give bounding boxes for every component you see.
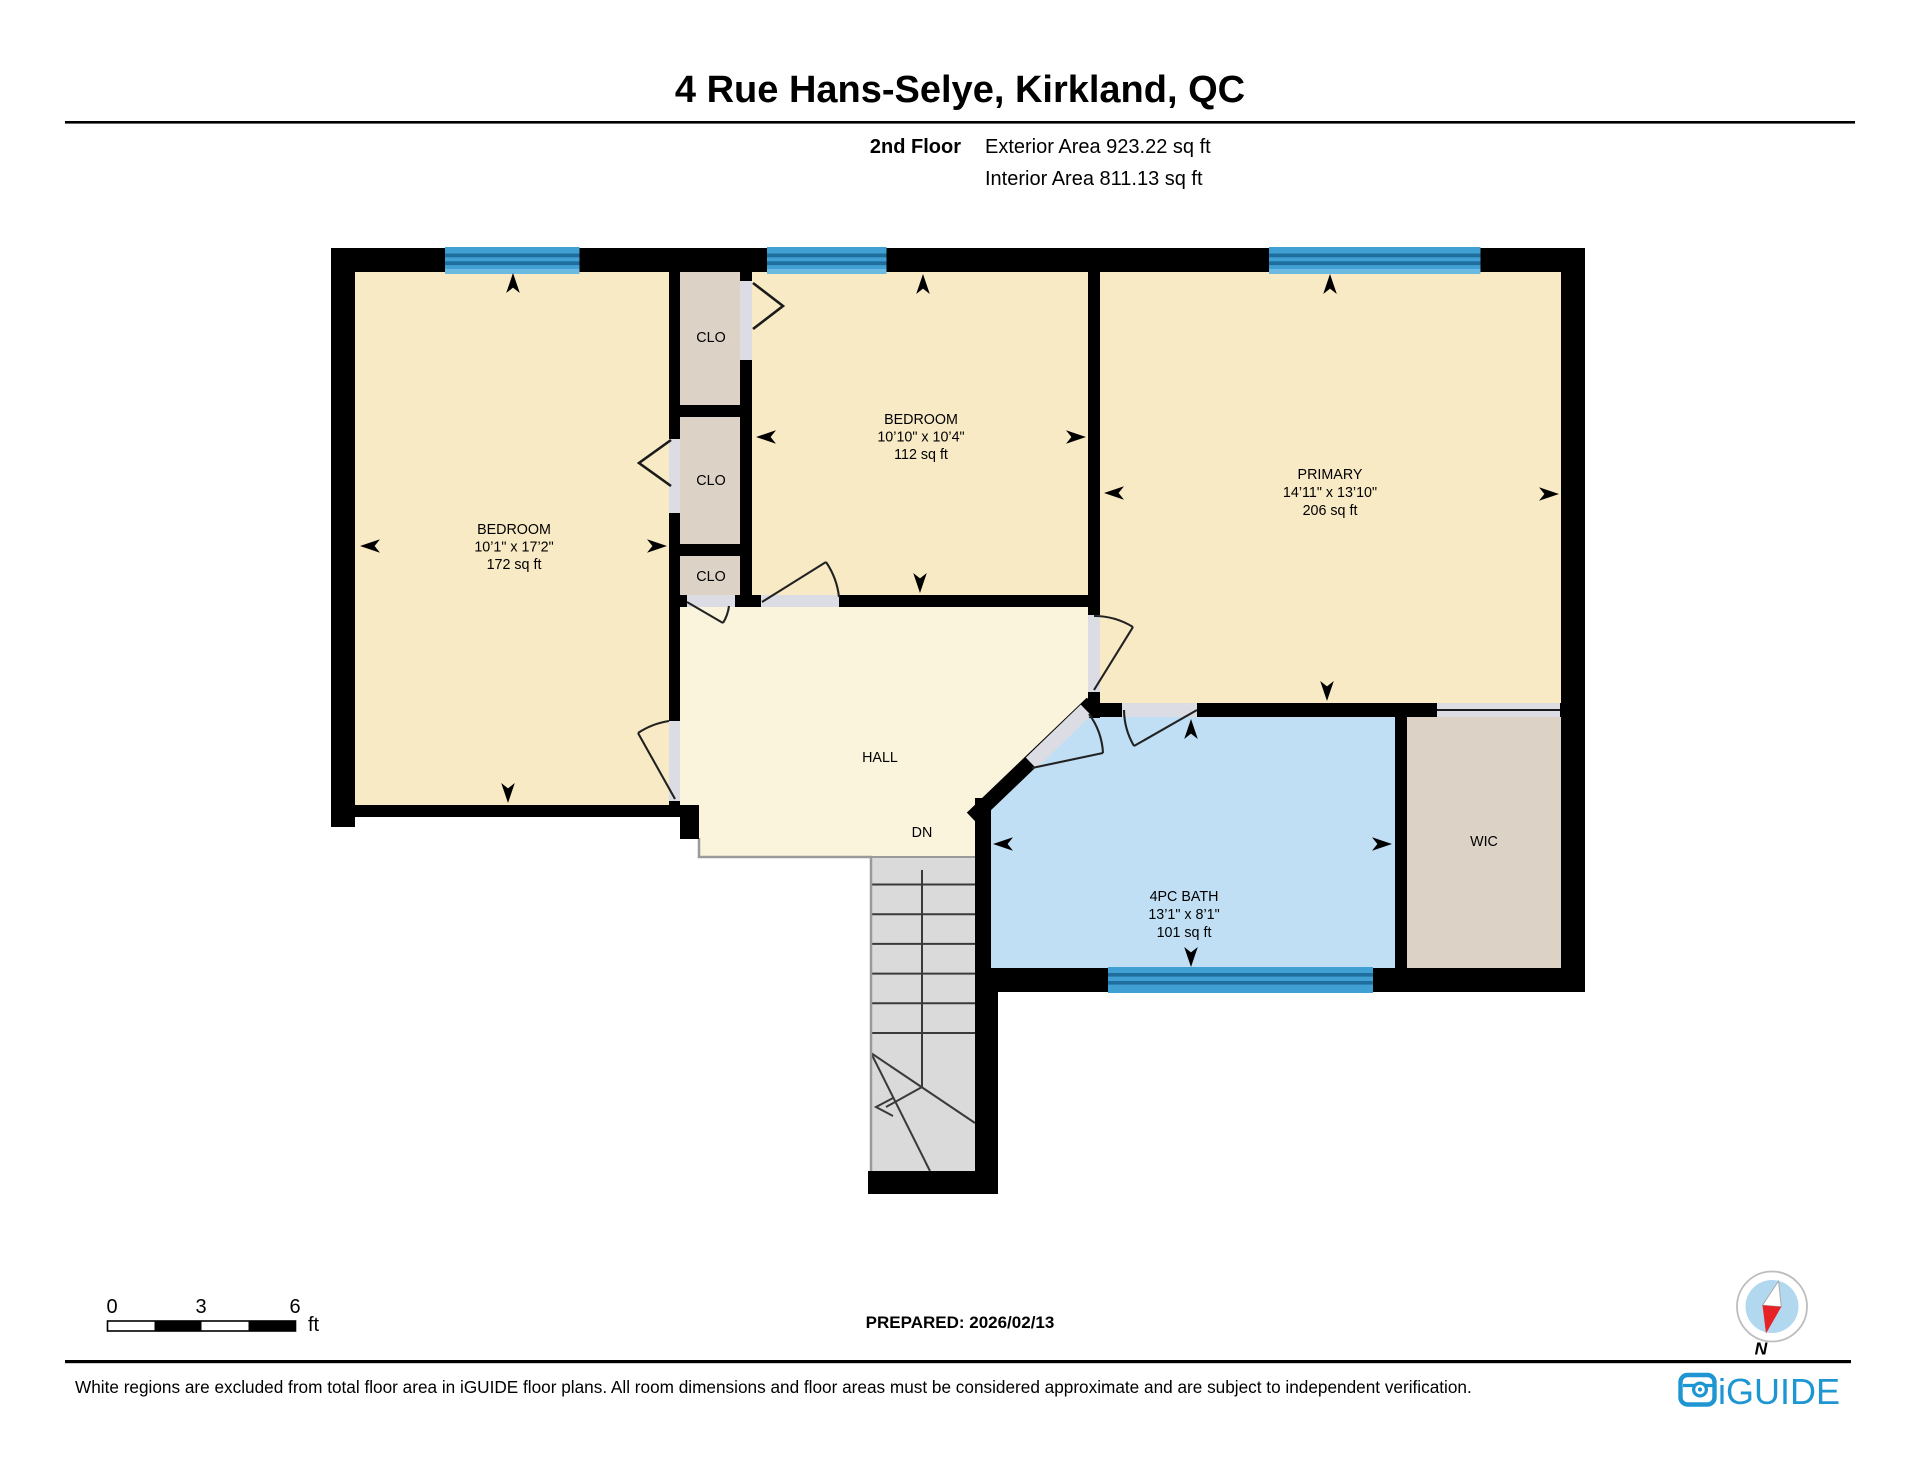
svg-text:CLO: CLO bbox=[696, 473, 725, 489]
svg-text:10’1" x 17’2": 10’1" x 17’2" bbox=[474, 540, 553, 556]
svg-text:WIC: WIC bbox=[1470, 834, 1498, 850]
svg-text:206 sq ft: 206 sq ft bbox=[1303, 503, 1358, 519]
svg-text:13’1" x 8’1": 13’1" x 8’1" bbox=[1148, 907, 1219, 923]
svg-text:BEDROOM: BEDROOM bbox=[477, 522, 551, 538]
svg-text:14’11" x 13’10": 14’11" x 13’10" bbox=[1283, 485, 1377, 501]
svg-text:3: 3 bbox=[195, 1296, 206, 1318]
svg-text:172 sq ft: 172 sq ft bbox=[487, 557, 542, 573]
svg-text:N: N bbox=[1755, 1339, 1768, 1359]
svg-text:CLO: CLO bbox=[696, 330, 725, 346]
svg-text:HALL: HALL bbox=[862, 750, 898, 766]
svg-text:PRIMARY: PRIMARY bbox=[1298, 467, 1363, 483]
svg-text:6: 6 bbox=[289, 1296, 300, 1318]
svg-text:DN: DN bbox=[912, 825, 933, 841]
svg-text:101 sq ft: 101 sq ft bbox=[1157, 925, 1212, 941]
svg-text:PREPARED: 2026/02/13: PREPARED: 2026/02/13 bbox=[866, 1313, 1055, 1332]
svg-text:iGUIDE: iGUIDE bbox=[1718, 1371, 1840, 1412]
svg-text:0: 0 bbox=[106, 1296, 117, 1318]
svg-text:4 Rue Hans-Selye, Kirkland, QC: 4 Rue Hans-Selye, Kirkland, QC bbox=[675, 69, 1245, 111]
svg-text:ft: ft bbox=[308, 1314, 320, 1336]
svg-text:BEDROOM: BEDROOM bbox=[884, 412, 958, 428]
svg-text:White regions are excluded fro: White regions are excluded from total fl… bbox=[75, 1377, 1472, 1397]
svg-text:4PC BATH: 4PC BATH bbox=[1150, 889, 1219, 905]
svg-text:10’10" x 10’4": 10’10" x 10’4" bbox=[877, 430, 964, 446]
svg-text:Exterior Area 923.22 sq ft: Exterior Area 923.22 sq ft bbox=[985, 136, 1211, 158]
svg-text:CLO: CLO bbox=[696, 569, 725, 585]
svg-text:Interior Area 811.13 sq ft: Interior Area 811.13 sq ft bbox=[985, 168, 1203, 190]
svg-text:2nd Floor: 2nd Floor bbox=[870, 136, 961, 158]
svg-text:112 sq ft: 112 sq ft bbox=[894, 447, 948, 463]
